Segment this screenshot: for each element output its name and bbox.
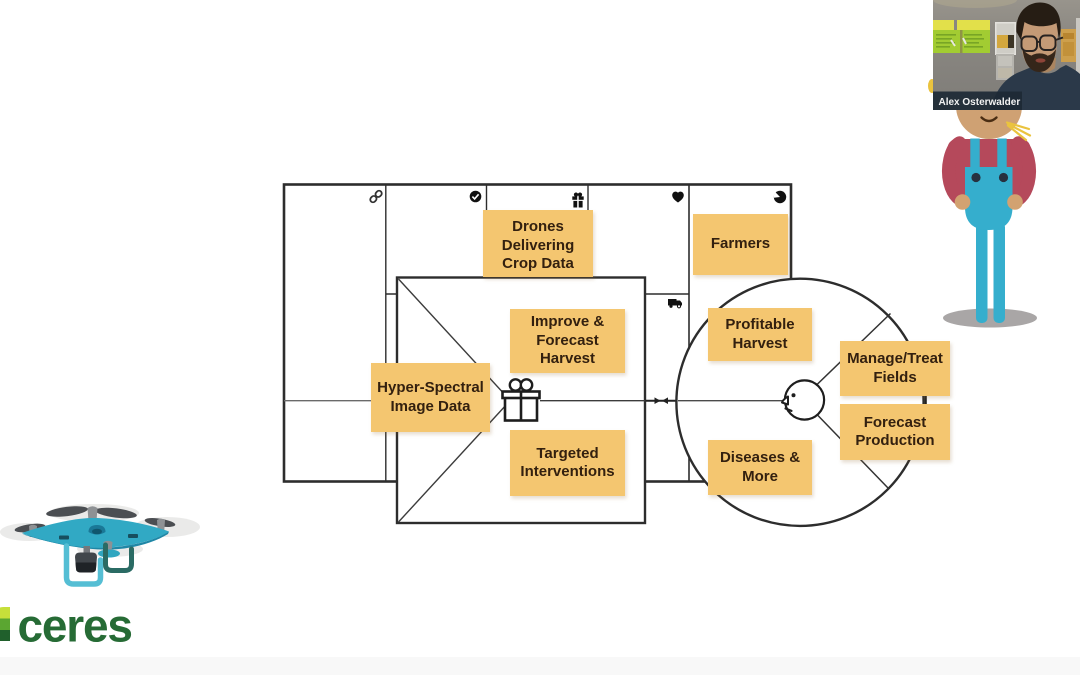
svg-text:Alex Osterwalder: Alex Osterwalder: [939, 97, 1021, 108]
svg-text:ceres: ceres: [18, 600, 132, 650]
